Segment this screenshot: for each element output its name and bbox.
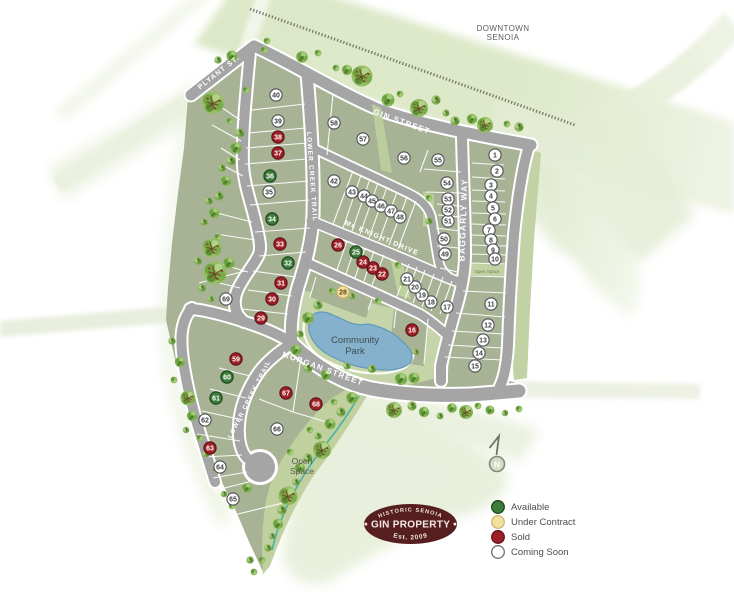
svg-text:38: 38	[274, 135, 282, 142]
svg-text:Community: Community	[331, 335, 379, 346]
svg-text:10: 10	[491, 257, 499, 264]
svg-text:52: 52	[444, 208, 452, 215]
svg-text:46: 46	[377, 204, 385, 211]
svg-text:56: 56	[400, 156, 408, 163]
svg-text:14: 14	[475, 351, 483, 358]
svg-text:16: 16	[408, 328, 416, 335]
svg-text:43: 43	[348, 190, 356, 197]
svg-text:57: 57	[359, 137, 367, 144]
svg-text:Under Contract: Under Contract	[511, 517, 576, 528]
svg-text:24: 24	[359, 260, 367, 267]
svg-text:37: 37	[274, 151, 282, 158]
svg-text:51: 51	[444, 219, 452, 226]
svg-text:13: 13	[479, 338, 487, 345]
svg-text:26: 26	[334, 243, 342, 250]
svg-text:34: 34	[268, 217, 276, 224]
svg-text:N: N	[494, 461, 500, 470]
svg-text:66: 66	[273, 427, 281, 434]
svg-text:Open Space: Open Space	[474, 269, 500, 274]
svg-text:11: 11	[487, 302, 495, 309]
svg-text:48: 48	[396, 215, 404, 222]
svg-text:21: 21	[403, 277, 411, 284]
svg-text:69: 69	[222, 297, 230, 304]
svg-text:20: 20	[411, 285, 419, 292]
svg-text:33: 33	[276, 242, 284, 249]
svg-text:36: 36	[266, 174, 274, 181]
svg-text:63: 63	[206, 446, 214, 453]
svg-text:65: 65	[229, 497, 237, 504]
svg-text:22: 22	[378, 272, 386, 279]
svg-text:35: 35	[265, 190, 273, 197]
svg-text:29: 29	[257, 316, 265, 323]
svg-text:Park: Park	[345, 346, 365, 357]
svg-text:17: 17	[443, 305, 451, 312]
svg-text:3: 3	[489, 183, 493, 190]
svg-text:49: 49	[441, 252, 449, 259]
svg-text:15: 15	[471, 364, 479, 371]
svg-text:62: 62	[201, 418, 209, 425]
svg-text:1: 1	[493, 153, 497, 160]
svg-text:23: 23	[369, 266, 377, 273]
svg-text:Coming Soon: Coming Soon	[511, 547, 569, 558]
svg-text:58: 58	[330, 121, 338, 128]
svg-text:19: 19	[418, 293, 426, 300]
svg-text:• GIN PROPERTY •: • GIN PROPERTY •	[364, 520, 457, 531]
svg-text:31: 31	[277, 281, 285, 288]
svg-text:61: 61	[212, 396, 220, 403]
svg-text:60: 60	[223, 375, 231, 382]
svg-text:30: 30	[268, 297, 276, 304]
svg-text:Space: Space	[290, 466, 314, 476]
svg-text:18: 18	[427, 300, 435, 307]
svg-text:42: 42	[330, 179, 338, 186]
svg-text:2: 2	[495, 169, 499, 176]
svg-text:SENOIA: SENOIA	[487, 33, 520, 42]
svg-text:DOWNTOWN: DOWNTOWN	[477, 24, 530, 33]
svg-text:40: 40	[272, 93, 280, 100]
svg-text:28: 28	[339, 290, 347, 297]
svg-text:64: 64	[216, 465, 224, 472]
svg-text:5: 5	[491, 206, 495, 213]
svg-text:4: 4	[489, 194, 493, 201]
svg-text:Open: Open	[292, 456, 313, 466]
svg-text:12: 12	[484, 323, 492, 330]
svg-text:25: 25	[352, 250, 360, 257]
svg-text:39: 39	[274, 119, 282, 126]
svg-text:6: 6	[493, 217, 497, 224]
svg-text:Sold: Sold	[511, 532, 530, 543]
svg-text:53: 53	[444, 197, 452, 204]
svg-text:32: 32	[284, 261, 292, 268]
svg-text:54: 54	[443, 181, 451, 188]
svg-text:68: 68	[312, 402, 320, 409]
svg-text:67: 67	[282, 391, 290, 398]
svg-text:50: 50	[440, 237, 448, 244]
svg-text:55: 55	[434, 158, 442, 165]
svg-text:Available: Available	[511, 502, 549, 513]
svg-text:59: 59	[232, 357, 240, 364]
